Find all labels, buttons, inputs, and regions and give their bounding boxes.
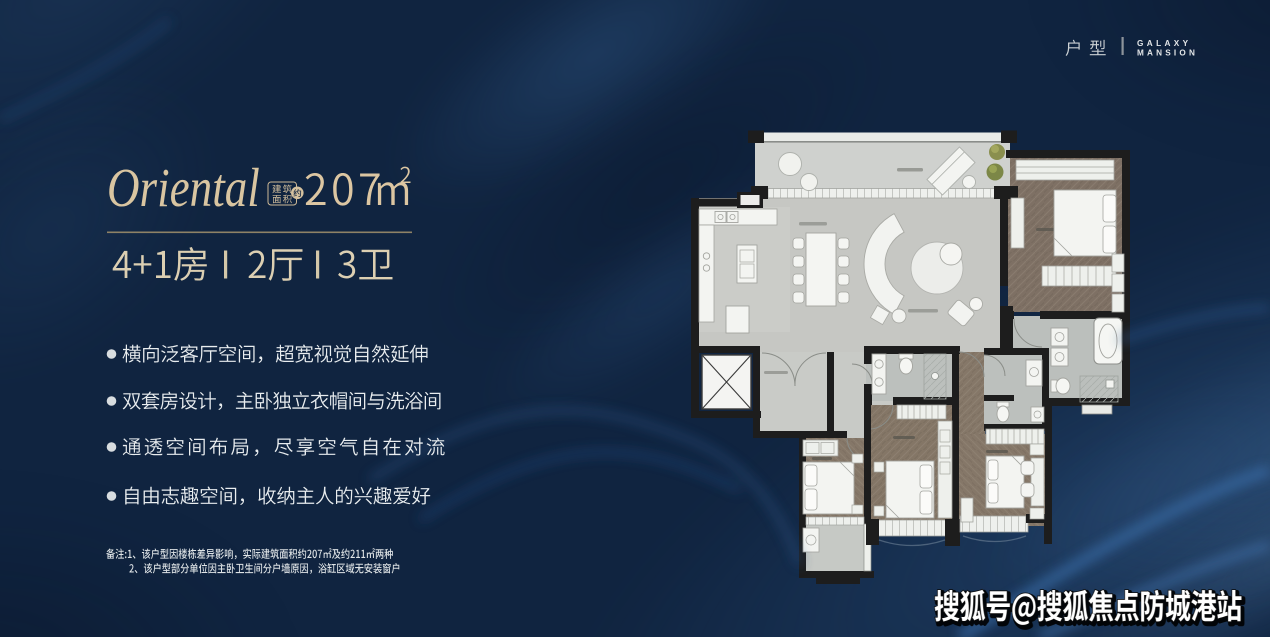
svg-text:GALAXY: GALAXY	[1137, 39, 1192, 48]
svg-text:Oriental: Oriental	[107, 157, 260, 218]
svg-text:MANSION: MANSION	[1137, 49, 1198, 58]
